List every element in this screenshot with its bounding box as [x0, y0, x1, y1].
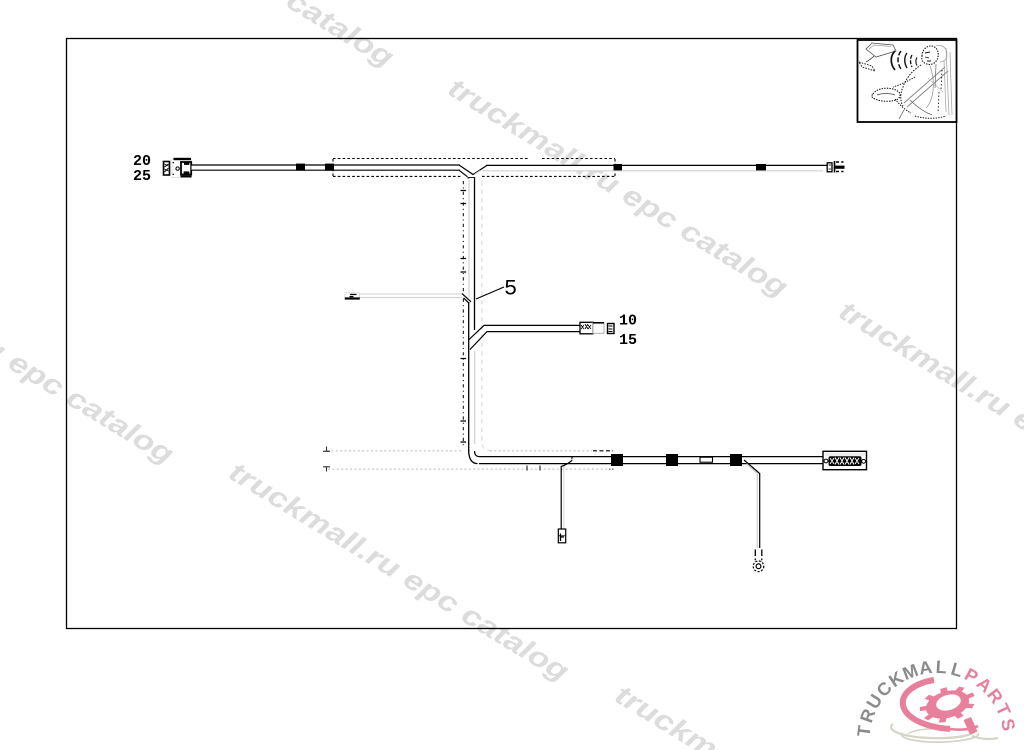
svg-text:5: 5: [504, 277, 517, 302]
svg-text:25: 25: [133, 168, 151, 185]
svg-text:10: 10: [619, 313, 637, 330]
svg-text:L: L: [935, 657, 947, 678]
svg-text:15: 15: [619, 332, 637, 349]
